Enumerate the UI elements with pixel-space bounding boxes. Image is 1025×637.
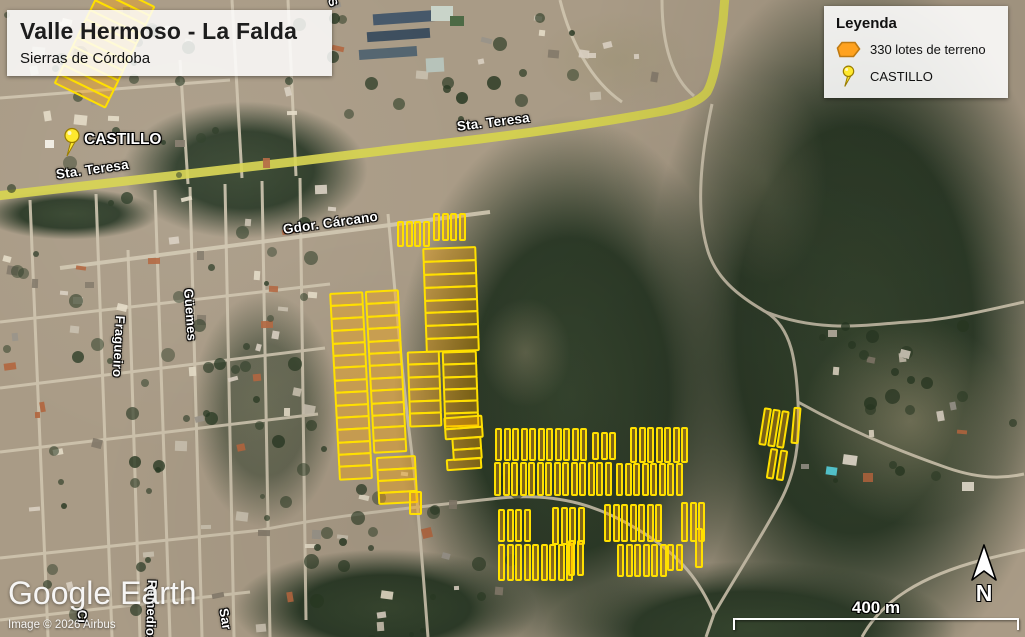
map-subtitle: Sierras de Córdoba	[20, 50, 319, 67]
scale-tick-left	[733, 619, 735, 630]
street-label: Sta. Teresa	[456, 110, 531, 134]
scale-label: 400 m	[852, 598, 900, 618]
street-label: Sta. Teresa	[55, 157, 130, 182]
street-label: S	[325, 0, 341, 9]
legend-item-lots: 330 lotes de terreno	[836, 41, 998, 58]
title-box: Valle Hermoso - La Falda Sierras de Córd…	[7, 10, 332, 76]
scale-tick-right	[1017, 619, 1019, 630]
north-arrow-icon	[963, 544, 1005, 582]
lot-polygon-icon	[836, 41, 861, 58]
imagery-copyright: Image © 2026 Airbus	[8, 619, 116, 631]
street-label: Fragueiro	[110, 315, 128, 377]
scale-line	[733, 618, 1019, 620]
legend-item-label: CASTILLO	[870, 69, 933, 84]
google-earth-map-view[interactable]: Sta. TeresaSta. TeresaGdor. CárcanoGüeme…	[0, 0, 1025, 637]
placemark-label: CASTILLO	[84, 131, 162, 149]
castillo-placemark[interactable]	[62, 127, 82, 158]
street-label: Güemes	[181, 288, 200, 341]
map-title: Valle Hermoso - La Falda	[20, 18, 319, 45]
legend-title: Leyenda	[836, 15, 998, 32]
street-label: Gdor. Cárcano	[282, 209, 379, 237]
legend-item-label: 330 lotes de terreno	[870, 42, 986, 57]
google-earth-logo: Google Earth	[8, 575, 197, 612]
pushpin-icon	[836, 65, 861, 88]
legend: Leyenda 330 lotes de terreno CASTILLO	[824, 6, 1008, 98]
street-label: Sar	[216, 607, 235, 631]
pushpin-icon[interactable]	[62, 127, 82, 158]
compass: N	[963, 544, 1005, 607]
compass-label: N	[963, 580, 1005, 607]
legend-item-castillo: CASTILLO	[836, 65, 998, 88]
